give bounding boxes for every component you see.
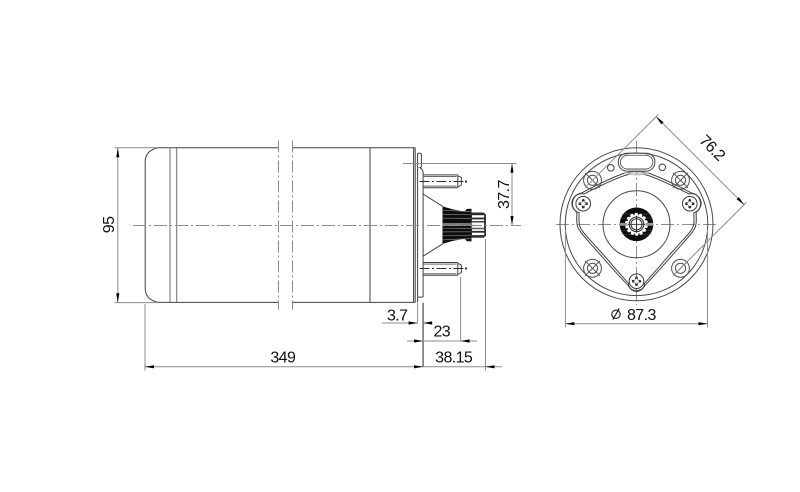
svg-text:3.7: 3.7 [387,307,408,324]
svg-text:349: 349 [270,350,296,367]
svg-text:37.7: 37.7 [496,180,513,209]
svg-text:95: 95 [101,216,118,233]
svg-text:87.3: 87.3 [627,307,656,324]
svg-text:38.15: 38.15 [435,349,473,366]
svg-text:76.2: 76.2 [696,132,729,165]
svg-text:23: 23 [433,324,450,341]
